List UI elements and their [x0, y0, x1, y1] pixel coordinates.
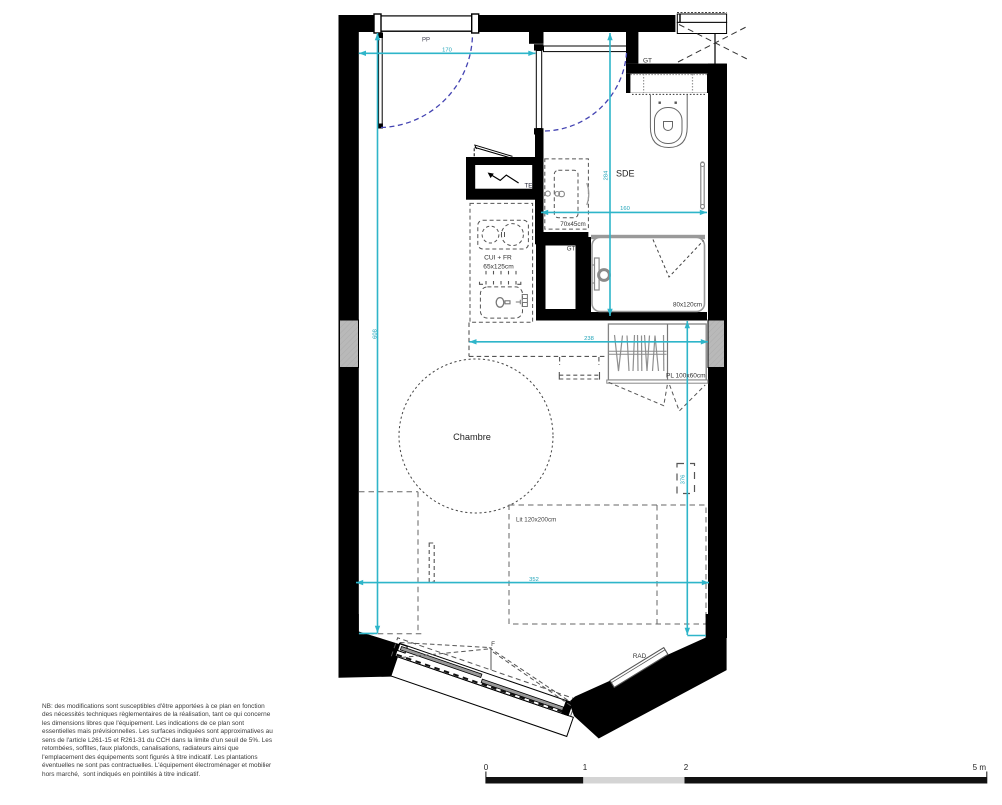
svg-text:TE: TE: [525, 183, 533, 190]
svg-text:160: 160: [620, 206, 630, 212]
svg-text:Chambre: Chambre: [453, 432, 491, 442]
svg-text:5 m: 5 m: [973, 763, 987, 772]
svg-text:Lit 120x200cm: Lit 120x200cm: [516, 517, 556, 524]
svg-text:170: 170: [442, 48, 452, 54]
svg-text:0: 0: [484, 763, 489, 772]
svg-text:PL 100x60cm: PL 100x60cm: [666, 373, 706, 380]
svg-text:284: 284: [604, 170, 610, 180]
svg-text:608: 608: [373, 329, 379, 339]
svg-text:GT: GT: [643, 58, 652, 65]
svg-text:GT: GT: [567, 246, 576, 253]
svg-text:1: 1: [583, 763, 588, 772]
svg-text:PP: PP: [422, 38, 430, 44]
svg-text:SDE: SDE: [616, 169, 635, 179]
svg-text:65x125cm: 65x125cm: [483, 263, 514, 270]
svg-text:80x120cm: 80x120cm: [673, 301, 702, 308]
svg-text:376: 376: [681, 475, 687, 485]
svg-text:CUI + FR: CUI + FR: [484, 255, 512, 262]
svg-text:F: F: [491, 641, 495, 648]
svg-text:70x45cm: 70x45cm: [560, 221, 586, 228]
svg-text:352: 352: [529, 577, 539, 583]
svg-text:238: 238: [584, 336, 594, 342]
svg-text:2: 2: [684, 763, 689, 772]
svg-text:RAD: RAD: [633, 653, 647, 660]
